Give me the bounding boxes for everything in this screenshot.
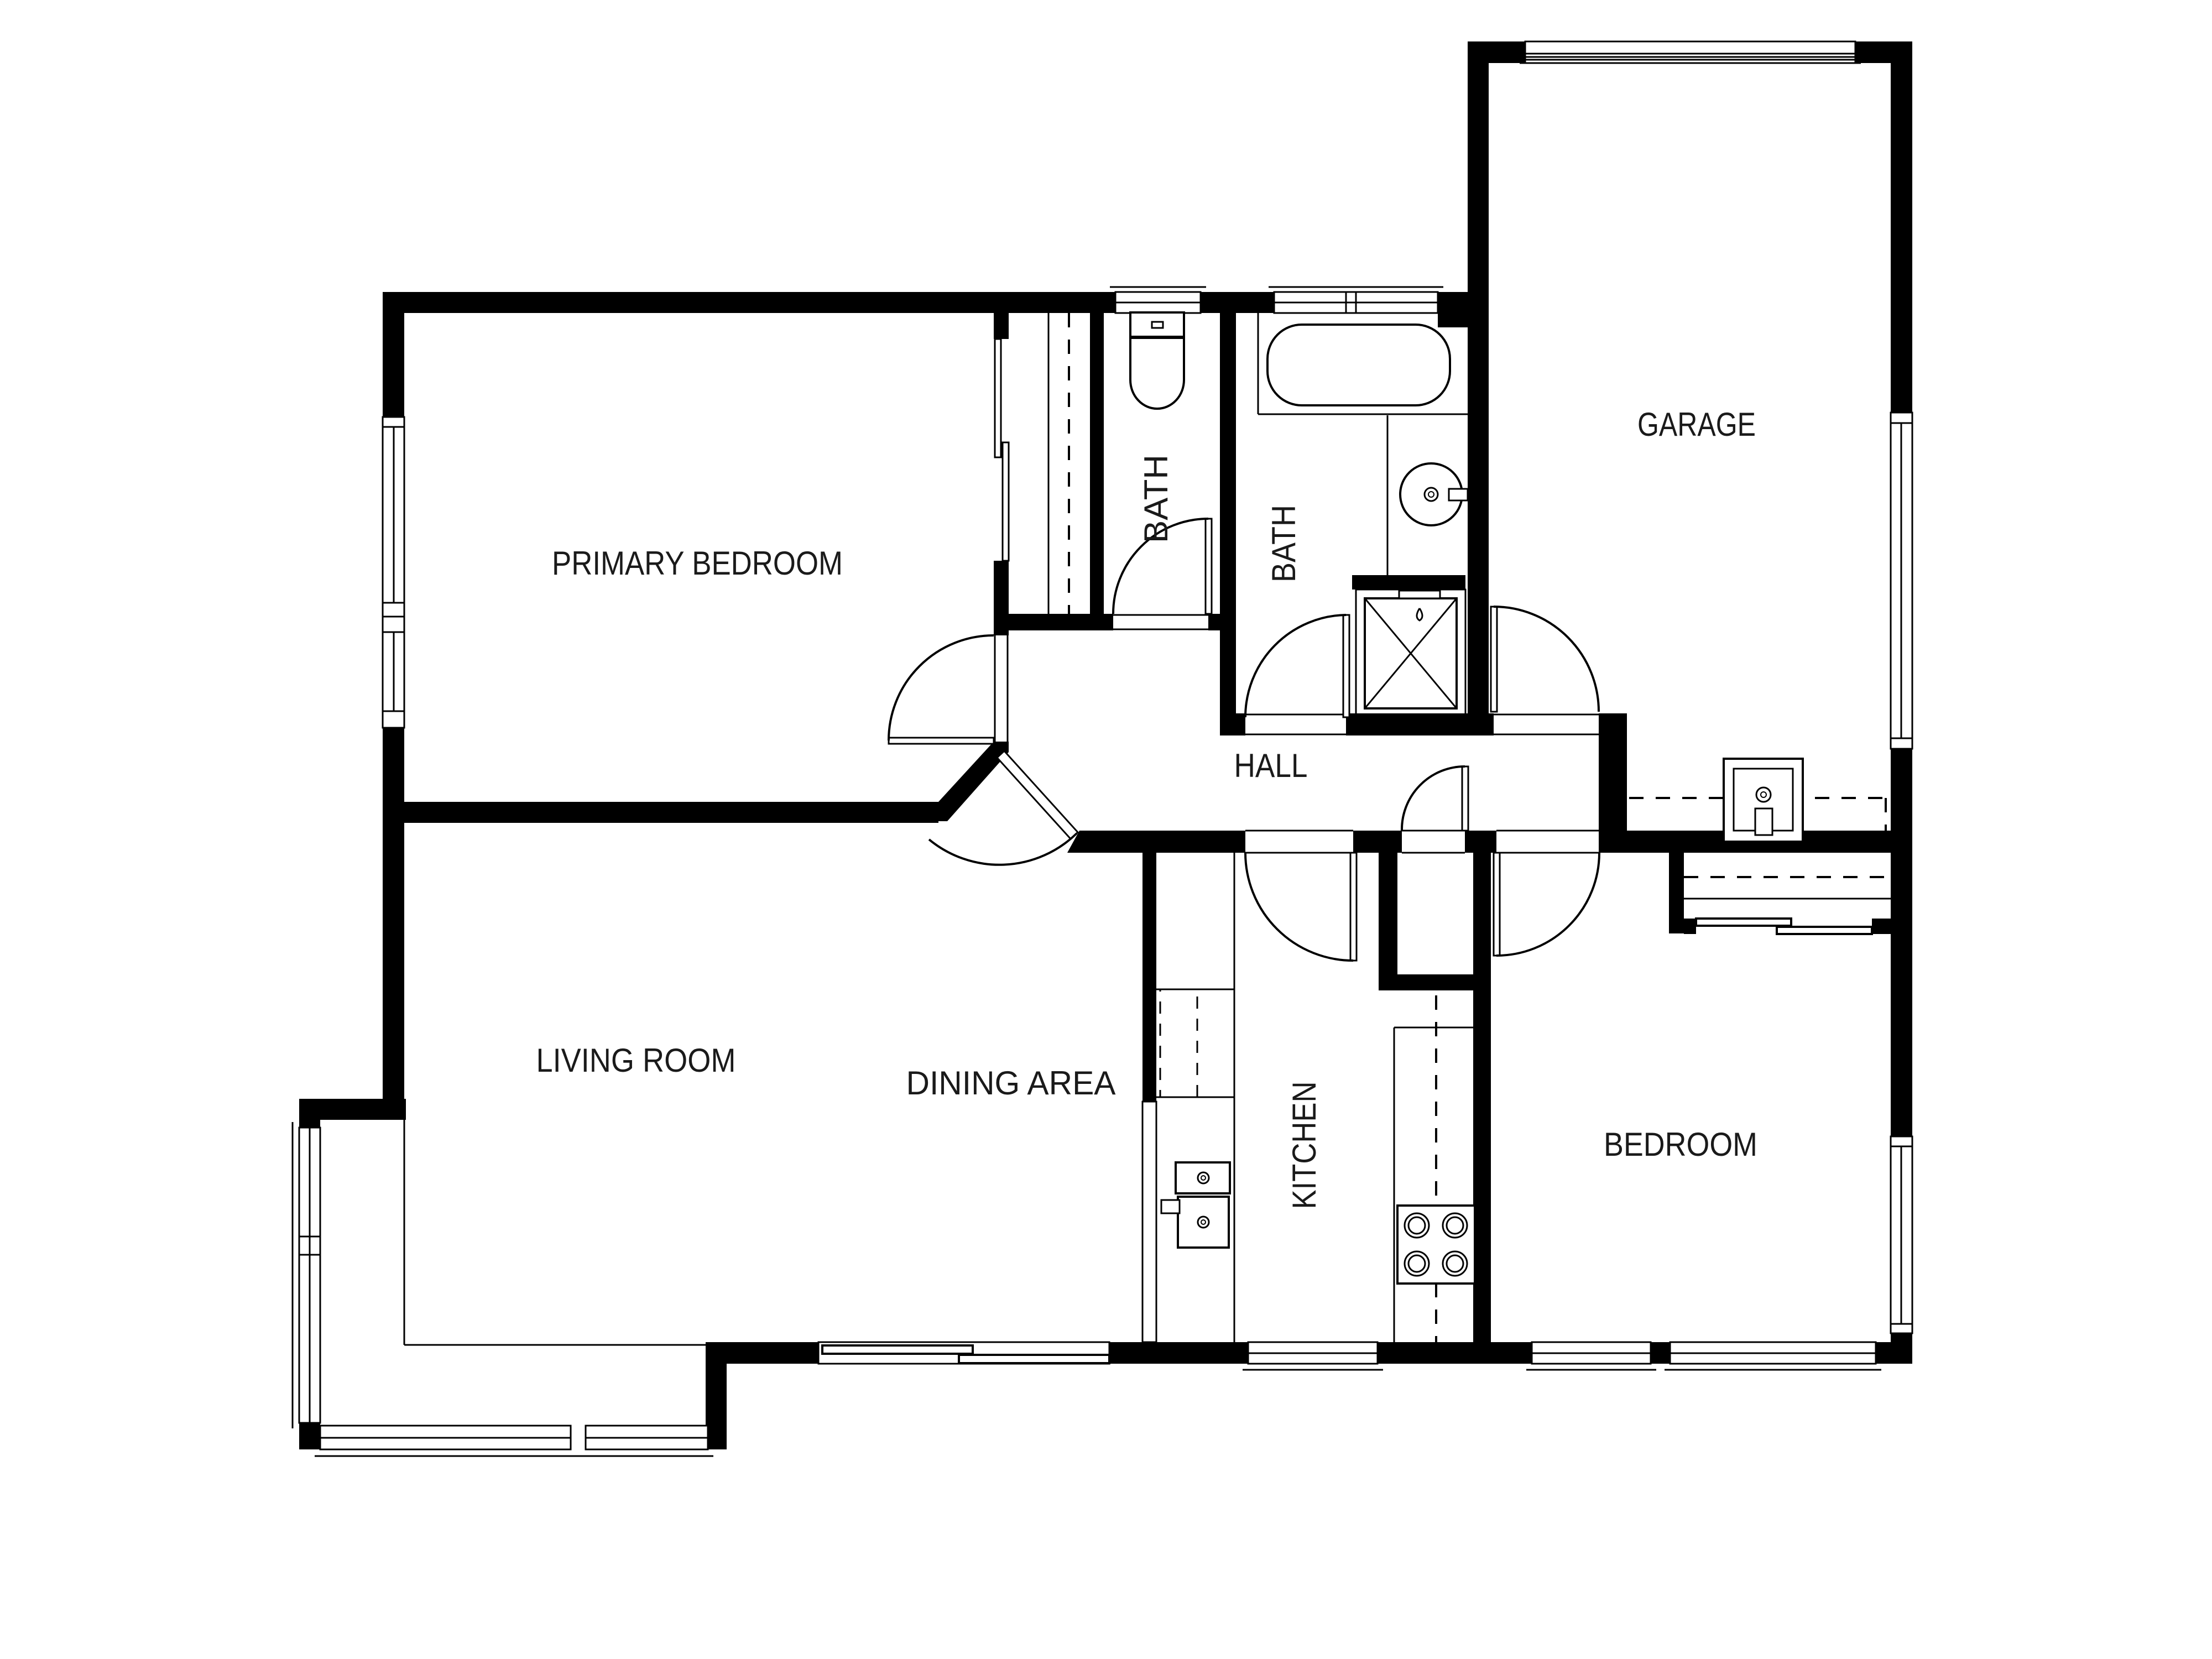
svg-text:KITCHEN: KITCHEN [1286, 1082, 1323, 1209]
svg-text:GARAGE: GARAGE [1637, 406, 1756, 443]
svg-text:DINING AREA: DINING AREA [906, 1065, 1116, 1102]
svg-text:BATH: BATH [1138, 455, 1175, 543]
svg-text:PRIMARY BEDROOM: PRIMARY BEDROOM [552, 545, 843, 582]
svg-text:BATH: BATH [1265, 505, 1302, 582]
svg-text:HALL: HALL [1234, 747, 1308, 784]
svg-text:BEDROOM: BEDROOM [1604, 1126, 1757, 1163]
svg-text:LIVING ROOM: LIVING ROOM [536, 1042, 736, 1079]
